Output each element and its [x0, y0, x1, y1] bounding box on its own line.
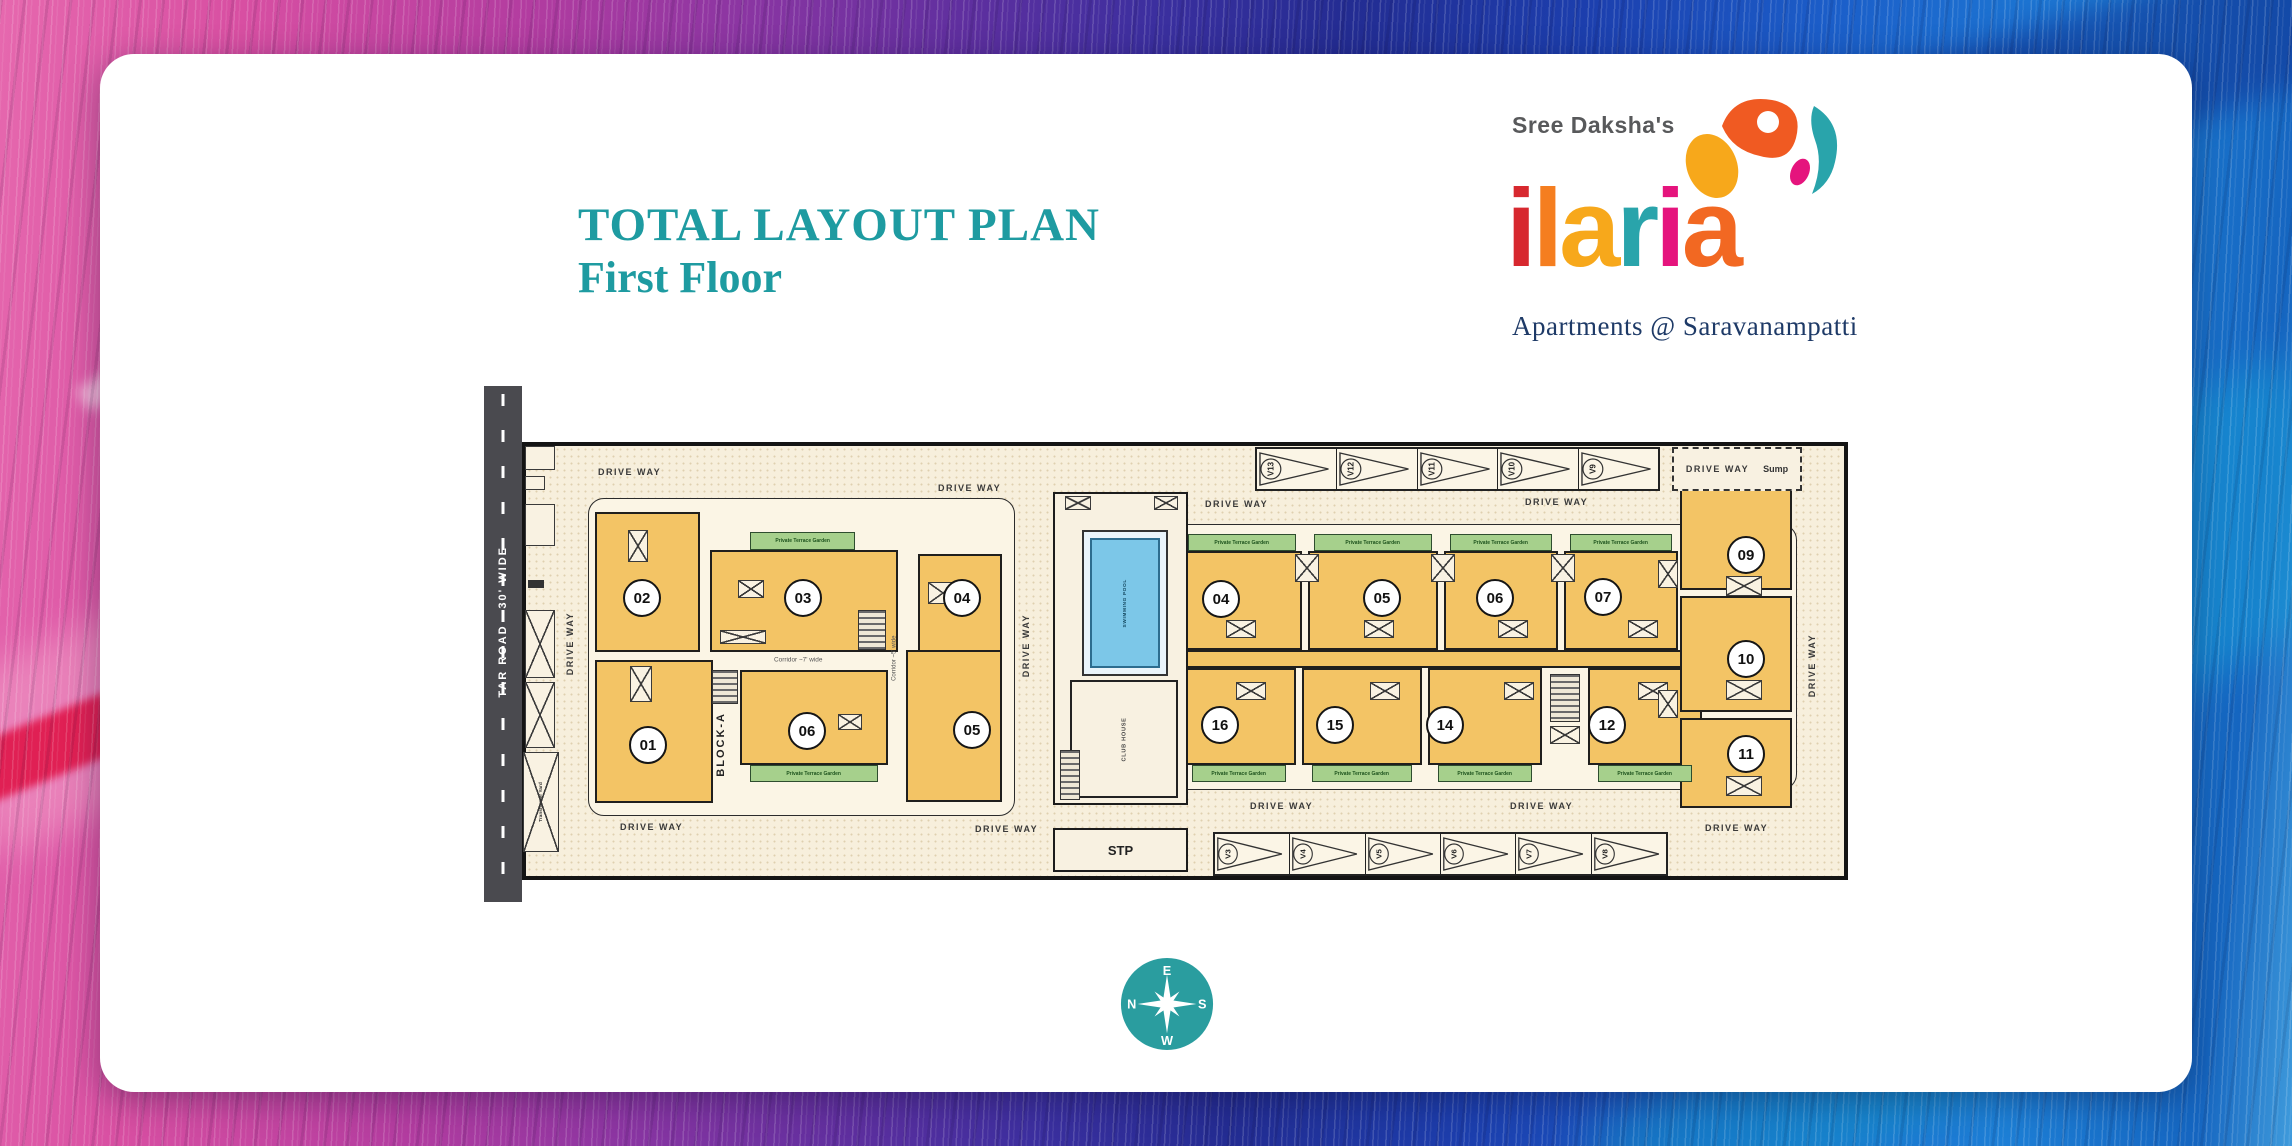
unit-number-badge: 04: [943, 579, 981, 617]
parking-slot: V7: [1516, 834, 1591, 874]
brand-letter: r: [1616, 174, 1655, 284]
terrace-garden-label: Private Terrace Garden: [1212, 771, 1267, 776]
parking-slot: V4: [1290, 834, 1365, 874]
service-box: [525, 504, 555, 546]
unit-number-badge: 07: [1584, 578, 1622, 616]
tar-road: TAR ROAD - 30' WIDE: [484, 386, 522, 902]
unit-number-badge: 16: [1201, 706, 1239, 744]
parking-slot-label: V3: [1224, 848, 1233, 859]
shaft-box: [1726, 576, 1762, 596]
terrace-garden: Private Terrace Garden: [1570, 534, 1672, 551]
entry-gate-box: [525, 446, 555, 470]
unit-number-badge: 06: [788, 712, 826, 750]
unit-number-badge: 06: [1476, 579, 1514, 617]
unit-number-badge: 09: [1727, 536, 1765, 574]
parking-slot-label: V13: [1266, 461, 1275, 476]
terrace-garden-label: Private Terrace Garden: [1618, 771, 1673, 776]
terrace-garden: Private Terrace Garden: [1450, 534, 1552, 551]
parking-slot-label: V8: [1600, 848, 1609, 859]
driveway-label: DRIVE WAY: [1525, 498, 1588, 507]
shaft-box: [838, 714, 862, 730]
parking-slot: V6: [1441, 834, 1516, 874]
brand-wordmark: ilaria: [1506, 174, 1739, 284]
unit-number-badge: 11: [1727, 735, 1765, 773]
entry-gate-box: [525, 476, 545, 490]
screen: TOTAL LAYOUT PLAN First Floor Sree Daksh…: [0, 0, 2292, 1146]
terrace-garden-label: Private Terrace Garden: [1594, 540, 1649, 545]
sump-label: Sump: [1763, 465, 1788, 474]
terrace-garden: Private Terrace Garden: [1598, 765, 1692, 782]
terrace-garden: Private Terrace Garden: [1438, 765, 1532, 782]
driveway-label: DRIVE WAY: [1705, 824, 1768, 833]
unit-number-badge: 15: [1316, 706, 1354, 744]
unit-number-badge: 05: [1363, 579, 1401, 617]
unit-number-badge: 03: [784, 579, 822, 617]
terrace-garden: Private Terrace Garden: [1314, 534, 1432, 551]
parking-slot-label: V4: [1299, 848, 1308, 859]
driveway-label-vertical: DRIVE WAY: [1808, 634, 1817, 697]
terrace-garden: Private Terrace Garden: [1188, 534, 1296, 551]
brand-prefix: Sree Daksha's: [1512, 114, 1675, 137]
brand-letter: a: [1559, 174, 1616, 284]
unit-number-badge: 01: [629, 726, 667, 764]
shaft-box: [1504, 682, 1534, 700]
shaft-box: [1498, 620, 1528, 638]
parking-slot: V12: [1337, 449, 1417, 489]
shaft-box: [1370, 682, 1400, 700]
parking-slot-label: V6: [1450, 848, 1459, 859]
page-title: TOTAL LAYOUT PLAN: [578, 200, 1100, 252]
parking-slot-label: V5: [1374, 848, 1383, 859]
block-a-label: BLOCK-A: [716, 712, 727, 777]
brand-letter: a: [1682, 174, 1739, 284]
compass-south: S: [1198, 997, 1207, 1012]
tar-road-label: TAR ROAD - 30' WIDE: [484, 546, 522, 698]
stp-box: STP: [1053, 828, 1188, 872]
parking-slot-label: V11: [1427, 462, 1436, 476]
parking-slot: V10: [1498, 449, 1578, 489]
shaft-box: [1364, 620, 1394, 638]
staircase: [1550, 674, 1580, 722]
driveway-label: DRIVE WAY: [1510, 802, 1573, 811]
corridor-label: Corridor ~7' wide: [774, 657, 822, 663]
swimming-pool: SWIMMING POOL: [1090, 538, 1160, 668]
parking-row-bottom: V3 V4 V5 V6 V7 V8: [1213, 832, 1668, 876]
visitor-parking-box: [525, 682, 555, 748]
shaft-box: [1726, 680, 1762, 700]
compass-north: N: [1127, 997, 1136, 1012]
unit-number-badge: 10: [1727, 640, 1765, 678]
driveway-label: DRIVE WAY: [975, 825, 1038, 834]
staircase: [858, 610, 886, 650]
driveway-label: DRIVE WAY: [1686, 465, 1749, 474]
gate-bollard: [528, 580, 544, 588]
swimming-pool-label: SWIMMING POOL: [1123, 579, 1128, 627]
shaft-box: [1236, 682, 1266, 700]
shaft-box: [1551, 554, 1575, 582]
brand-tagline: Apartments @ Saravanampatti: [1512, 310, 1858, 342]
terrace-garden: Private Terrace Garden: [1192, 765, 1286, 782]
brand-letter: i: [1506, 174, 1533, 284]
terrace-garden-label: Private Terrace Garden: [1458, 771, 1513, 776]
driveway-label: DRIVE WAY: [1205, 500, 1268, 509]
terrace-garden: Private Terrace Garden: [750, 532, 855, 550]
parking-slot: V8: [1592, 834, 1666, 874]
parking-slot-label: V12: [1347, 461, 1356, 476]
page-subtitle: First Floor: [578, 254, 782, 302]
driveway-label: DRIVE WAY: [620, 823, 683, 832]
shaft-box: [630, 666, 652, 702]
brand-letter: i: [1655, 174, 1682, 284]
shaft-box: [1726, 776, 1762, 796]
staircase: [1060, 750, 1080, 800]
shaft-box: [1658, 690, 1678, 718]
staircase: [712, 670, 738, 704]
parking-slot: V3: [1215, 834, 1290, 874]
unit-number-badge: 12: [1588, 706, 1626, 744]
terrace-garden: Private Terrace Garden: [1312, 765, 1412, 782]
shaft-box: [1065, 496, 1091, 510]
shaft-box: [1628, 620, 1658, 638]
terrace-garden-label: Private Terrace Garden: [787, 771, 842, 776]
terrace-garden-label: Private Terrace Garden: [775, 539, 830, 544]
parking-slot-label: V7: [1525, 849, 1534, 859]
terrace-garden-label: Private Terrace Garden: [1335, 771, 1390, 776]
floor-plan: TAR ROAD - 30' WIDE Transformer Yard Pri…: [470, 384, 1862, 909]
driveway-label: DRIVE WAY: [598, 468, 661, 477]
parking-slot-label: V9: [1588, 464, 1597, 474]
shaft-box: [1154, 496, 1178, 510]
driveway-label: DRIVE WAY: [1250, 802, 1313, 811]
shaft-box: [1226, 620, 1256, 638]
transformer-yard-label: Transformer Yard: [539, 782, 544, 822]
compass-rose-icon: E S W N: [1118, 955, 1216, 1053]
terrace-garden-label: Private Terrace Garden: [1215, 540, 1270, 545]
brand-letter: l: [1533, 174, 1560, 284]
shaft-box: [738, 580, 764, 598]
parking-slot: V9: [1579, 449, 1658, 489]
compass-east: E: [1163, 963, 1172, 978]
club-house: CLUB HOUSE: [1070, 680, 1178, 798]
content-card: TOTAL LAYOUT PLAN First Floor Sree Daksh…: [100, 54, 2192, 1092]
sump-box: DRIVE WAY Sump: [1672, 447, 1802, 491]
parking-slot: V5: [1366, 834, 1441, 874]
block-b-corridor: [1182, 650, 1702, 668]
compass-west: W: [1161, 1033, 1173, 1048]
shaft-box: [1658, 560, 1678, 588]
driveway-label: DRIVE WAY: [938, 484, 1001, 493]
unit-number-badge: 02: [623, 579, 661, 617]
parking-row-top: V13 V12 V11 V10 V9: [1255, 447, 1660, 491]
unit-number-badge: 14: [1426, 706, 1464, 744]
shaft-box: [1431, 554, 1455, 582]
parking-slot-label: V10: [1508, 461, 1517, 476]
corridor-label-vertical: Corridor ~5' wide: [891, 636, 897, 681]
unit-number-badge: 04: [1202, 580, 1240, 618]
unit-number-badge: 05: [953, 711, 991, 749]
terrace-garden: Private Terrace Garden: [750, 765, 878, 782]
transformer-yard: Transformer Yard: [523, 752, 559, 852]
parking-slot: V11: [1418, 449, 1498, 489]
driveway-label-vertical: DRIVE WAY: [1022, 614, 1031, 677]
visitor-parking-box: [525, 610, 555, 678]
shaft-box: [720, 630, 766, 644]
shaft-box: [628, 530, 648, 562]
terrace-garden-label: Private Terrace Garden: [1346, 540, 1401, 545]
parking-slot: V13: [1257, 449, 1337, 489]
club-house-label: CLUB HOUSE: [1121, 717, 1127, 761]
driveway-label-vertical: DRIVE WAY: [566, 612, 575, 675]
shaft-box: [1295, 554, 1319, 582]
shaft-box: [1550, 726, 1580, 744]
terrace-garden-label: Private Terrace Garden: [1474, 540, 1529, 545]
